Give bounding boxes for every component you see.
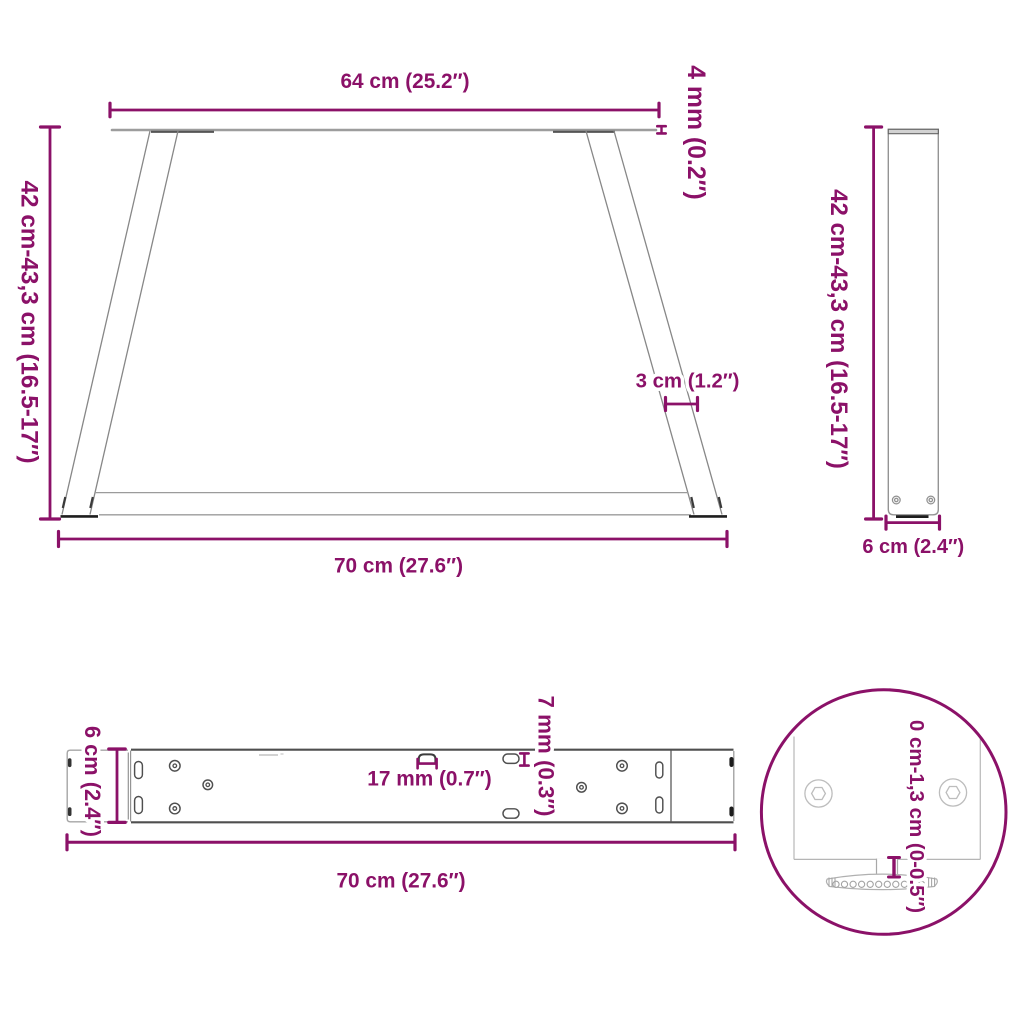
svg-text:70 cm (27.6″): 70 cm (27.6″): [336, 870, 465, 893]
svg-text:6 cm (2.4″): 6 cm (2.4″): [80, 726, 105, 837]
svg-text:42 cm-43,3 cm (16.5-17″): 42 cm-43,3 cm (16.5-17″): [825, 189, 852, 469]
svg-text:64 cm (25.2″): 64 cm (25.2″): [340, 70, 469, 93]
svg-text:0 cm-1,3 cm (0-0.5″): 0 cm-1,3 cm (0-0.5″): [905, 720, 928, 913]
svg-text:42 cm-43,3 cm (16.5-17″): 42 cm-43,3 cm (16.5-17″): [15, 180, 42, 463]
svg-text:3 cm (1.2″): 3 cm (1.2″): [636, 371, 740, 393]
svg-text:6 cm (2.4″): 6 cm (2.4″): [862, 536, 964, 558]
svg-text:4 mm (0.2″): 4 mm (0.2″): [682, 65, 709, 200]
svg-text:7 mm (0.3″): 7 mm (0.3″): [534, 696, 559, 817]
svg-text:70 cm (27.6″): 70 cm (27.6″): [334, 555, 463, 578]
svg-text:17 mm (0.7″): 17 mm (0.7″): [367, 768, 491, 791]
